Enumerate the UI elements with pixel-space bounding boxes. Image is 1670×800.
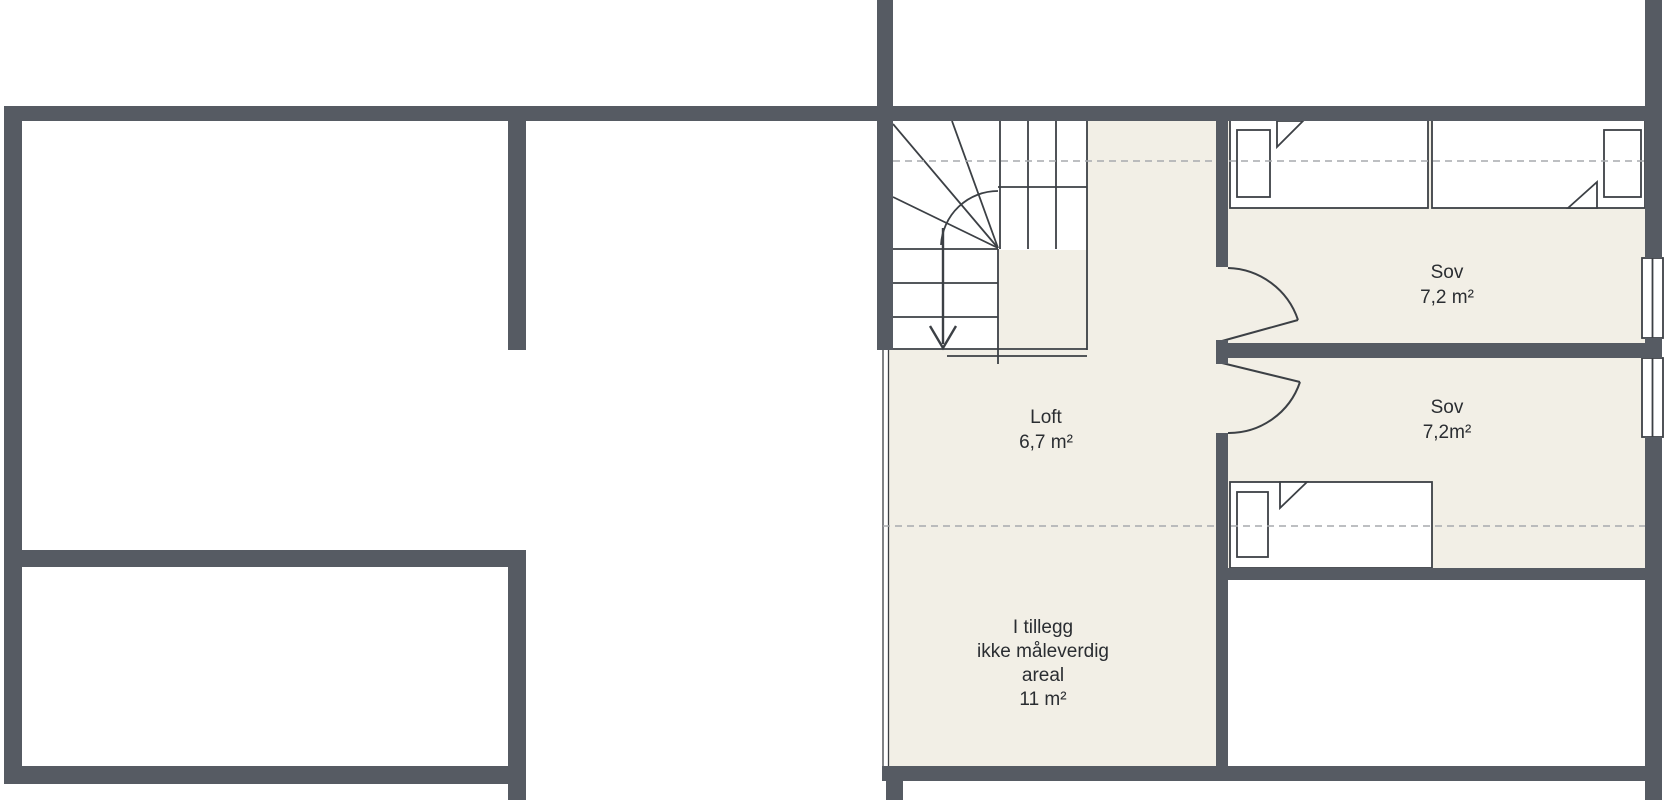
wall-right-between-windows — [1645, 338, 1662, 358]
room-name: Loft — [946, 405, 1146, 430]
wall-bottom-stub — [886, 781, 903, 800]
wall-left-inner-stub — [508, 121, 526, 350]
additional-area-text-line: ikke måleverdig — [893, 640, 1193, 664]
room-name: Sov — [1347, 395, 1547, 420]
wall-left-bottom — [4, 766, 526, 784]
wall-bedroom-divider-upper — [1216, 121, 1228, 267]
bed-icon — [1432, 120, 1645, 208]
additional-area-text-line: areal — [893, 664, 1193, 688]
wall-stair-left — [877, 0, 893, 350]
staircase — [893, 121, 1087, 364]
floor-plan: Loft 6,7 m² Sov 7,2 m² Sov 7,2m² I tille… — [0, 0, 1670, 800]
room-label-bedroom-1: Sov 7,2 m² — [1347, 260, 1547, 310]
room-area: 7,2 m² — [1347, 285, 1547, 310]
door-icon — [1222, 268, 1298, 341]
wall-bedroom-divider-lower — [1216, 433, 1228, 766]
open-area-boundary-line — [883, 350, 889, 766]
room-area: 6,7 m² — [946, 430, 1146, 455]
wall-bedroom2-bottom — [1216, 568, 1645, 580]
wall-left-middle — [4, 550, 526, 567]
bed-icon — [1230, 120, 1428, 208]
wall-right-lower — [1645, 437, 1662, 800]
wall-left — [4, 106, 22, 784]
room-label-additional-area: I tillegg ikke måleverdig areal 11 m² — [893, 616, 1193, 712]
wall-top — [4, 106, 1662, 121]
wall-left-room-right — [508, 550, 526, 800]
room-label-loft: Loft 6,7 m² — [946, 405, 1146, 455]
window-icon — [1642, 258, 1663, 338]
wall-right-upper — [1645, 0, 1662, 258]
room-label-bedroom-2: Sov 7,2m² — [1347, 395, 1547, 445]
bed-icon — [1230, 482, 1432, 568]
window-icon — [1642, 358, 1663, 437]
wall-loft-bottom — [882, 766, 1662, 781]
door-icon — [1222, 363, 1300, 433]
wall-bedroom-divider-middle — [1216, 340, 1228, 364]
room-area: 7,2m² — [1347, 420, 1547, 445]
wall-between-bedrooms — [1228, 343, 1645, 358]
room-name: Sov — [1347, 260, 1547, 285]
additional-area-text-line: I tillegg — [893, 616, 1193, 640]
additional-area-text-line: 11 m² — [893, 688, 1193, 712]
